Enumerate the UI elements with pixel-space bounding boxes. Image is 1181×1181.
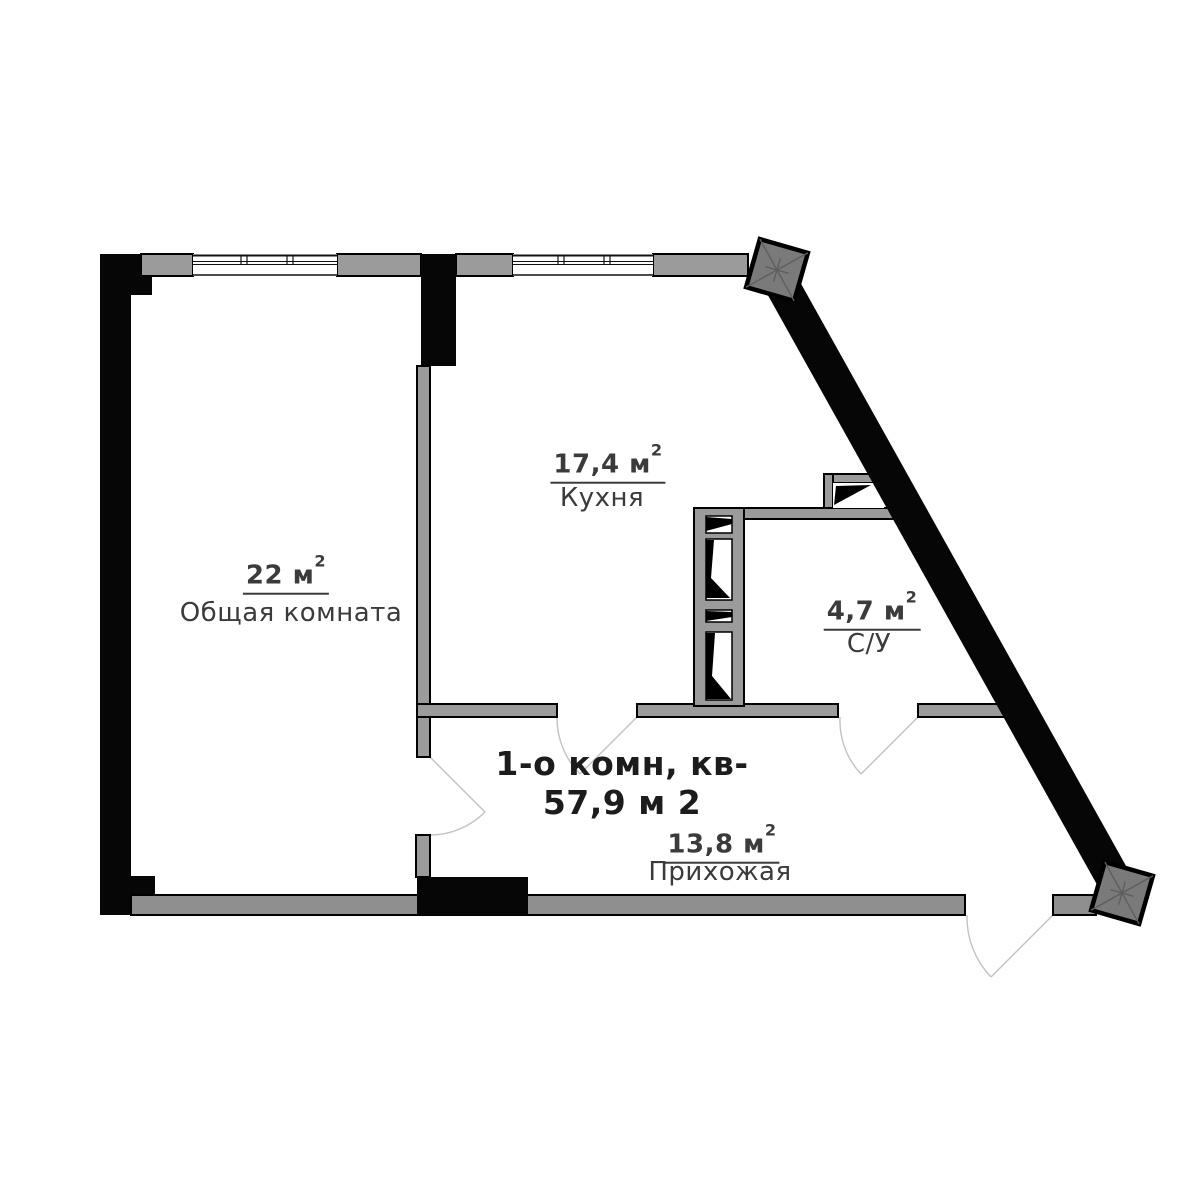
living-door-leaf — [430, 757, 485, 812]
hall-name-label: Прихожая — [648, 857, 791, 887]
bath-door-leaf — [861, 717, 918, 774]
hall-area-sup: 2 — [765, 820, 777, 839]
diagonal-wall — [760, 264, 1135, 899]
bottom-wall-black-block — [417, 877, 528, 915]
bath-area-label: 4,7 м2 — [824, 596, 921, 631]
floor-plan-drawing — [0, 0, 1181, 1181]
top-wall-gray-4 — [653, 254, 748, 276]
bath-door-arc — [840, 717, 861, 774]
window-kitchen — [513, 254, 653, 276]
bottom-wall-band — [131, 895, 965, 915]
vent-shaft — [694, 508, 744, 706]
living-door-stub — [416, 835, 430, 877]
top-wall-gray-3 — [456, 254, 513, 276]
top-wall-gray-2 — [337, 254, 421, 276]
corner-column-top — [746, 239, 808, 301]
kitchen-area-sup: 2 — [651, 440, 663, 459]
bath-area-value: 4,7 м — [827, 596, 906, 626]
left-wall-step-top — [131, 276, 152, 295]
apartment-title-line2: 57,9 м 2 — [495, 783, 748, 822]
bath-name-label: С/У — [847, 629, 891, 659]
kitchen-name-label: Кухня — [560, 483, 644, 513]
floor-plan-page: 22 м2 Общая комната 17,4 м2 Кухня 4,7 м2… — [0, 0, 1181, 1181]
living-area-sup: 2 — [314, 551, 326, 570]
entrance-door-leaf — [991, 915, 1053, 977]
apartment-title-line1: 1-о комн, кв- — [495, 744, 748, 783]
hall-area-value: 13,8 м — [667, 829, 764, 859]
living-door-arc — [430, 812, 485, 835]
entrance-door-arc — [967, 915, 991, 977]
kitchen-area-value: 17,4 м — [553, 449, 650, 479]
living-bottom-wall — [417, 704, 557, 717]
living-name-label: Общая комната — [180, 598, 403, 628]
bath-area-sup: 2 — [906, 587, 918, 606]
window-living — [193, 254, 337, 276]
apartment-title: 1-о комн, кв- 57,9 м 2 — [495, 744, 748, 822]
bath-bottom-right-wall — [918, 704, 1010, 717]
living-area-label: 22 м2 — [243, 560, 329, 595]
top-center-pillar — [421, 254, 456, 366]
left-wall — [100, 254, 155, 915]
living-area-value: 22 м — [246, 560, 315, 590]
top-wall-gray-1 — [141, 254, 193, 276]
corner-column-bottom — [1091, 862, 1153, 924]
living-right-wall — [417, 366, 430, 757]
kitchen-area-label: 17,4 м2 — [550, 449, 665, 484]
bottom-wall — [131, 877, 1096, 915]
